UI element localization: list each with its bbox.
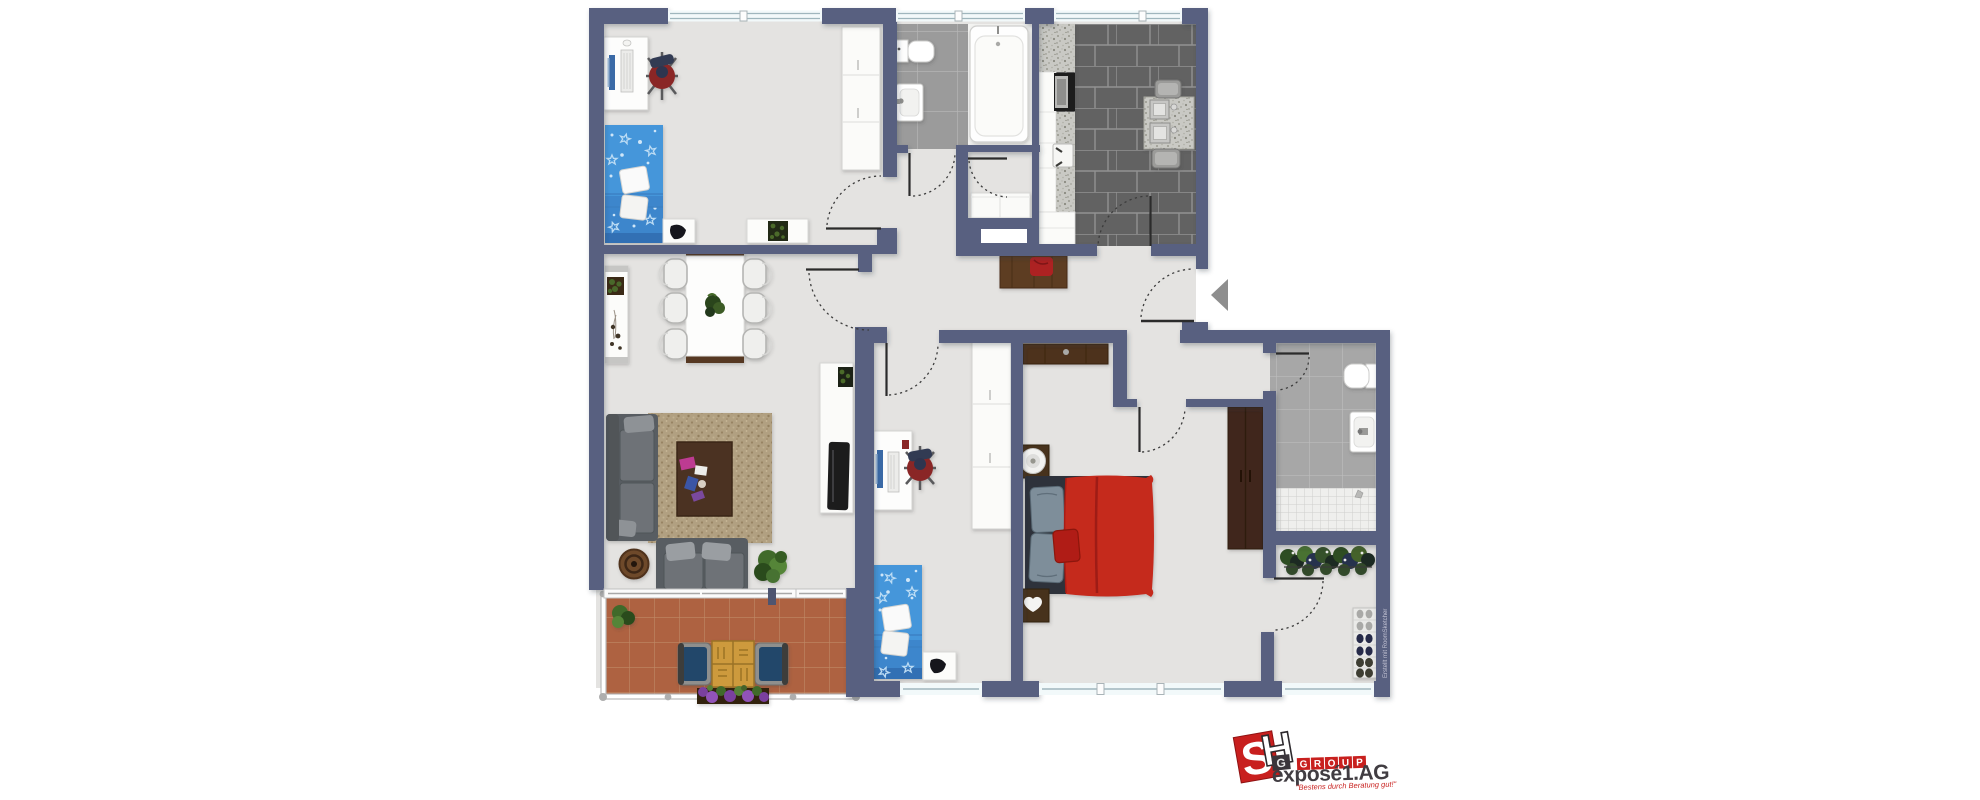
svg-text:Erstellt mit RoomSketcher: Erstellt mit RoomSketcher [1383,609,1389,678]
